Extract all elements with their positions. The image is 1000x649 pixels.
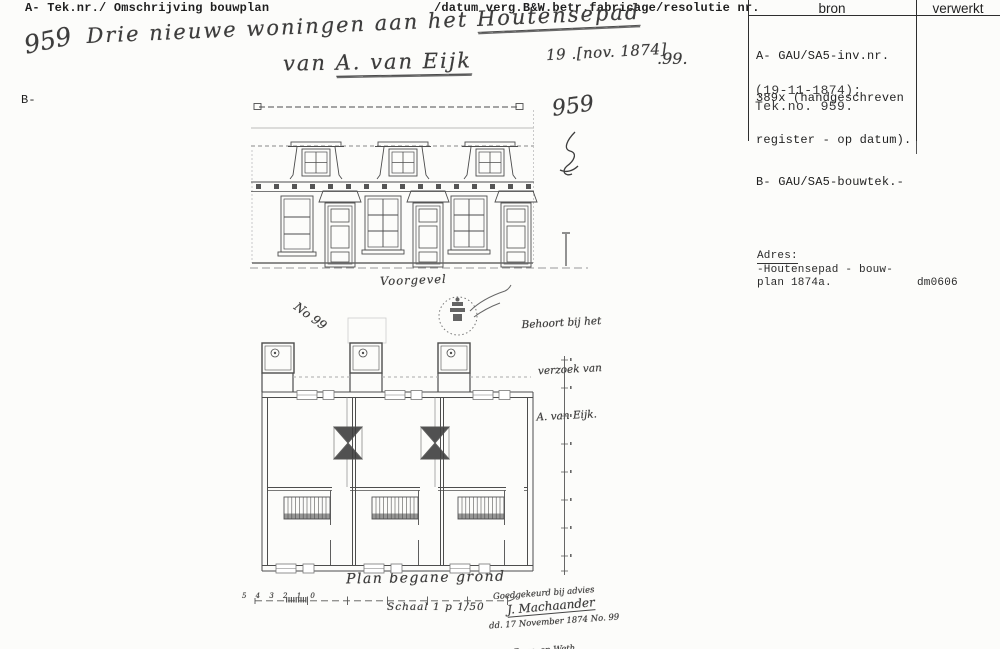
bouwtekening-drawing [0,0,1000,649]
handwritten-paraph [560,132,578,175]
floor-plan [262,318,533,573]
stamp-emblem [450,298,465,322]
vertical-scale-rod [561,356,572,575]
archive-stamp [439,285,511,335]
stamp-annotation-flourish [470,285,511,317]
horizontal-scale-bar [255,596,516,605]
scanned-record-card: A- Tek.nr./ Omschrijving bouwplan /datum… [0,0,1000,649]
facade-elevation [250,104,588,269]
